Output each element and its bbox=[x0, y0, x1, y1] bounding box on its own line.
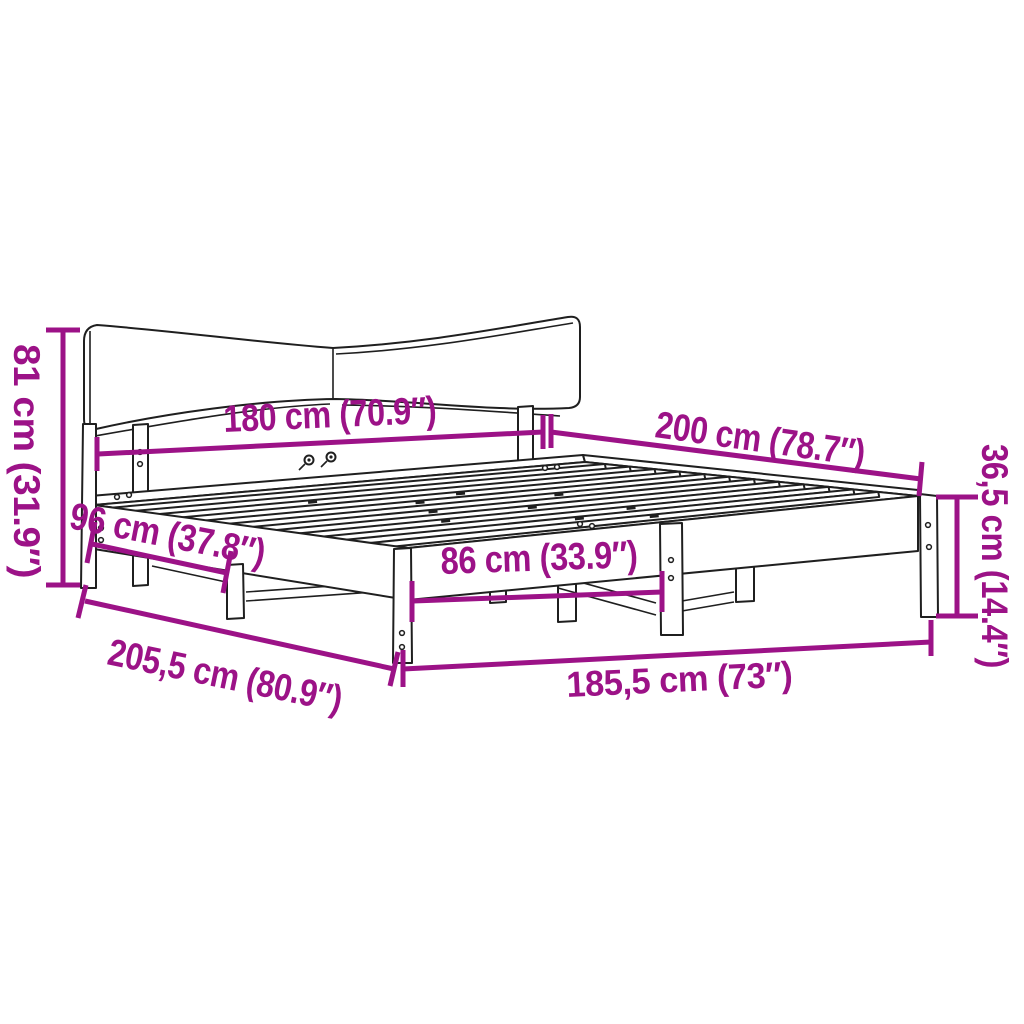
headboard-hooks bbox=[299, 453, 336, 471]
bed-frame-illustration bbox=[81, 317, 938, 663]
dim-length-label: 200 cm (78.7″) bbox=[653, 404, 868, 475]
dim-headboard-width-label: 180 cm (70.9″) bbox=[223, 390, 438, 441]
bed-dimension-diagram: 81 cm (31.9″) 180 cm (70.9″) 200 cm (78.… bbox=[0, 0, 1024, 1024]
dim-headboard-height-line bbox=[46, 330, 80, 585]
dim-foot-leg-gap-label: 86 cm (33.9″) bbox=[440, 534, 638, 583]
dim-frame-height-line bbox=[936, 497, 978, 616]
diagram-canvas: 81 cm (31.9″) 180 cm (70.9″) 200 cm (78.… bbox=[0, 0, 1024, 1024]
dim-total-length-label: 205,5 cm (80.9″) bbox=[104, 632, 346, 721]
leg-far-corner bbox=[920, 494, 938, 617]
dim-headboard-height-label: 81 cm (31.9″) bbox=[6, 344, 47, 578]
dim-frame-height-label: 36,5 cm (14.4″) bbox=[974, 444, 1015, 668]
leg-left-middle bbox=[227, 564, 244, 619]
